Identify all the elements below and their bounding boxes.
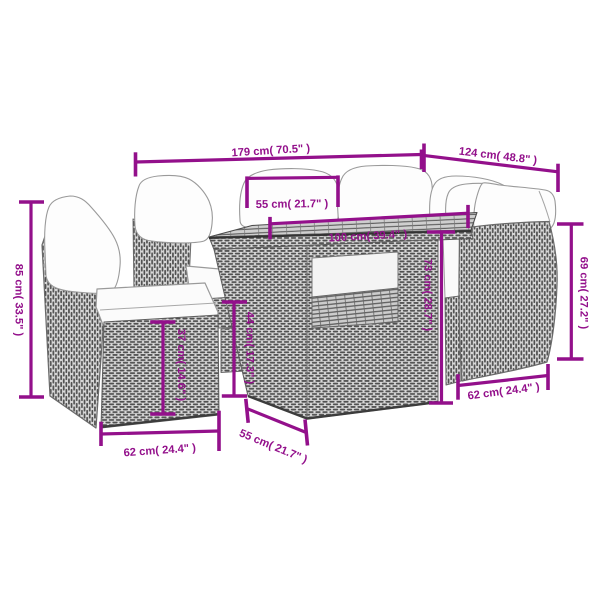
svg-text:44 cm( 17.3" ): 44 cm( 17.3" ) (244, 312, 256, 385)
svg-text:69 cm( 27.2" ): 69 cm( 27.2" ) (577, 257, 589, 330)
svg-text:62 cm( 24.4" ): 62 cm( 24.4" ) (123, 442, 196, 459)
svg-text:73 cm( 28.7" ): 73 cm( 28.7" ) (421, 259, 433, 332)
svg-text:55 cm( 21.7" ): 55 cm( 21.7" ) (256, 198, 329, 211)
svg-text:85 cm( 33.5" ): 85 cm( 33.5" ) (12, 264, 24, 337)
svg-text:37 cm( 14.6" ): 37 cm( 14.6" ) (175, 329, 187, 402)
svg-text:55 cm( 21.7" ): 55 cm( 21.7" ) (237, 427, 309, 466)
